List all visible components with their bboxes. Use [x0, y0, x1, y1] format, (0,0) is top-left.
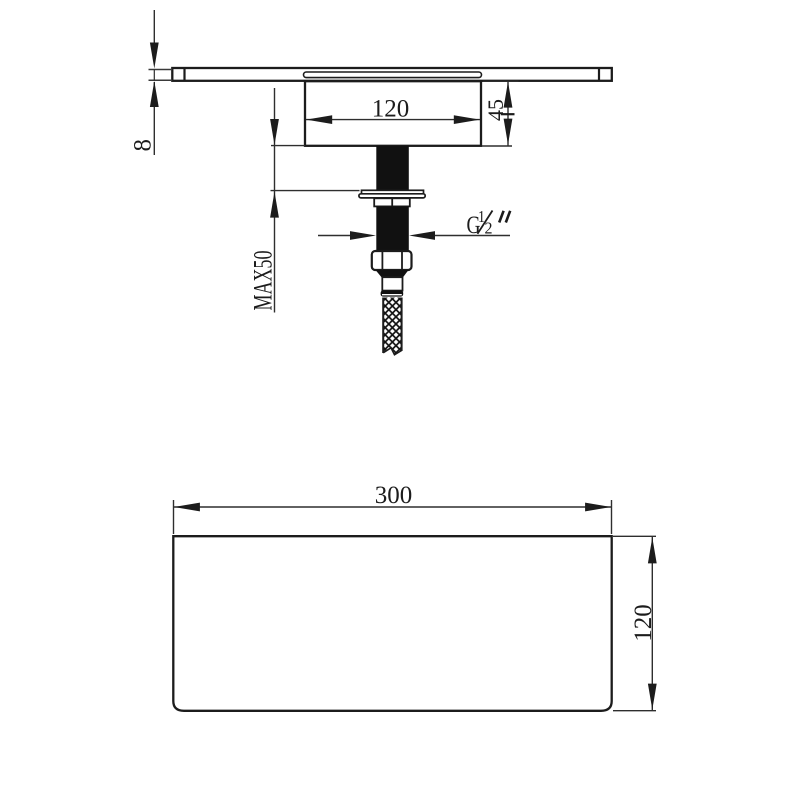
svg-text:2: 2 — [485, 219, 493, 238]
svg-text:8: 8 — [130, 139, 157, 152]
svg-text:300: 300 — [375, 482, 413, 509]
svg-text:120: 120 — [630, 604, 657, 642]
svg-text:MAX50: MAX50 — [249, 251, 278, 311]
svg-text:120: 120 — [372, 96, 410, 123]
svg-text:45: 45 — [483, 99, 508, 121]
